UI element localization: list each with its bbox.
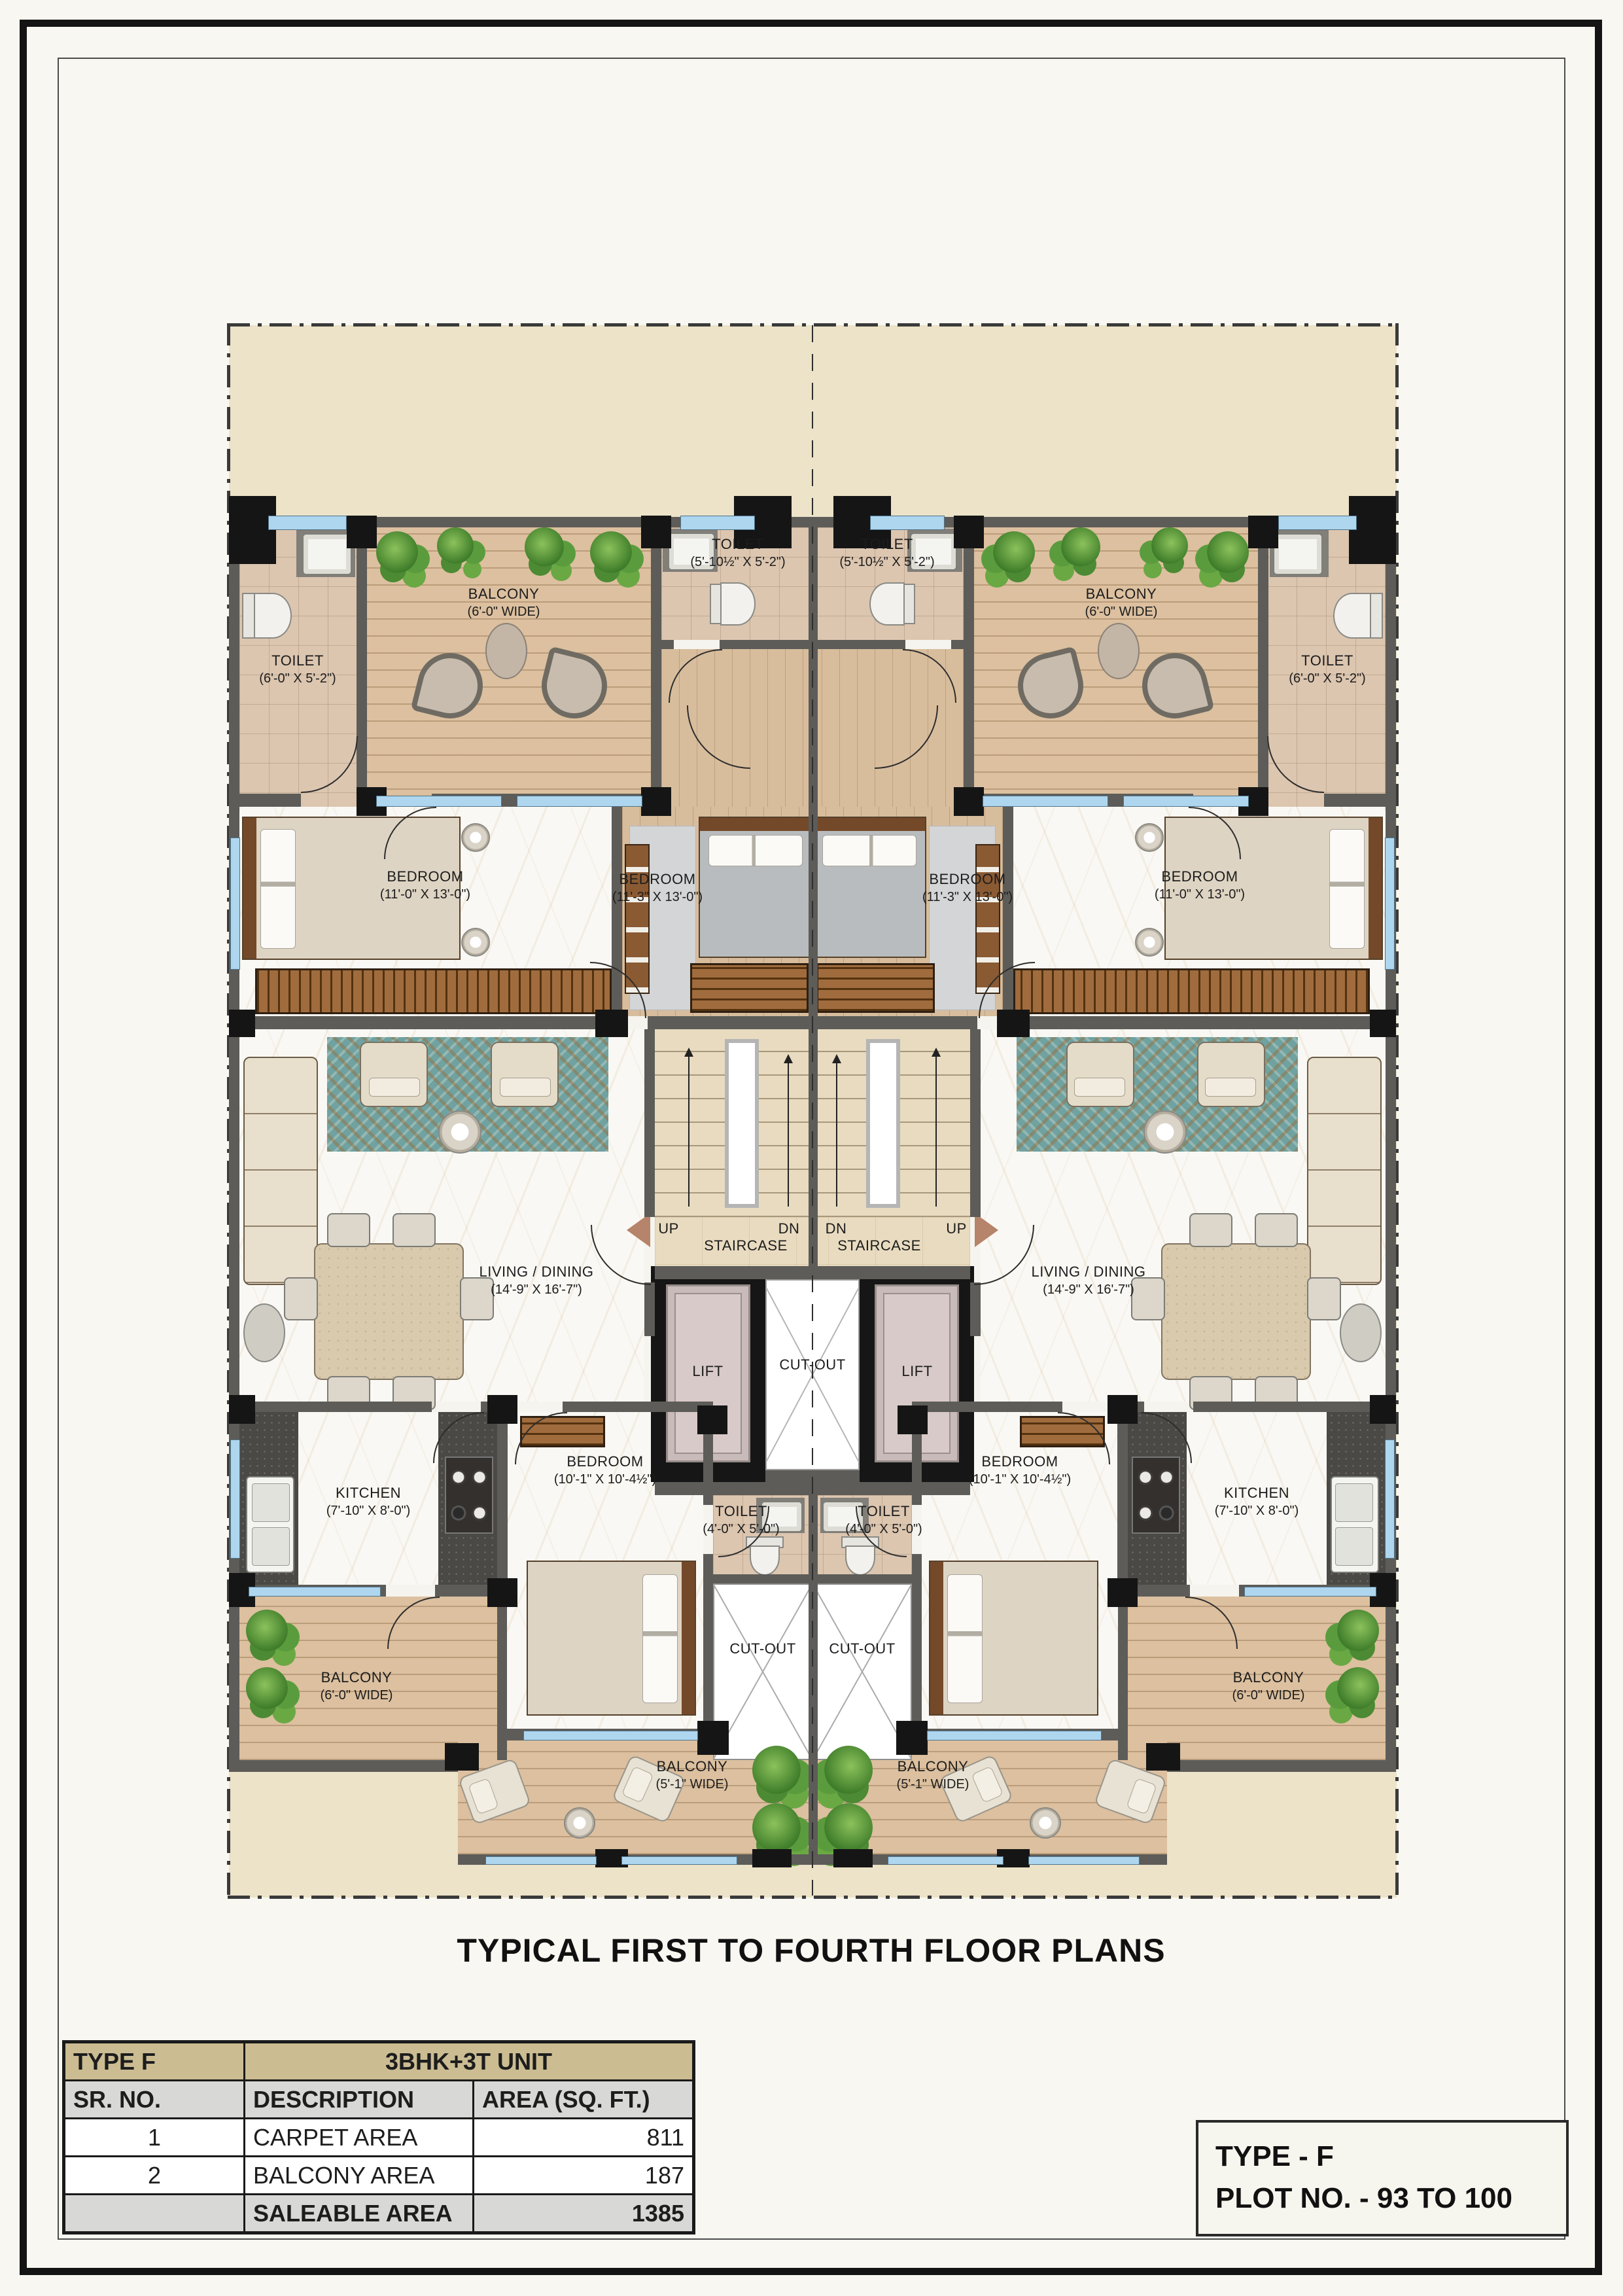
window (1385, 838, 1395, 970)
room-dims: (10'-1" X 10'-4½") (554, 1472, 656, 1488)
cutout-name: CUT-OUT (779, 1356, 845, 1375)
unit-label-cell: 3BHK+3T UNIT (243, 2043, 692, 2079)
room-name: KITCHEN (326, 1484, 411, 1503)
wall-shelf (975, 844, 1000, 994)
dining-chair (284, 1277, 318, 1320)
room-name: KITCHEN (1215, 1484, 1299, 1503)
armchair (491, 1042, 559, 1107)
room-name: BEDROOM (612, 870, 703, 889)
room-dims: (5'-10½" X 5'-2") (839, 554, 934, 571)
wall (703, 1554, 713, 1740)
wall (229, 1402, 432, 1412)
room-label-bedroom-outer: BEDROOM (11'-0" X 13'-0") (1155, 868, 1245, 903)
window (621, 1856, 737, 1865)
toilet-wc (869, 582, 905, 626)
room-dims: (14'-9" X 16'-7") (1032, 1282, 1146, 1298)
cell-sr: 2 (65, 2157, 243, 2193)
room-dims: (11'-3" X 13'-0") (922, 889, 1013, 906)
cutout-center-label: CUT-OUT (779, 1356, 845, 1375)
plant (824, 1803, 873, 1852)
wall (816, 640, 905, 649)
dining-chair (1255, 1213, 1298, 1247)
wall (648, 1016, 812, 1029)
col-sr-no: SR. NO. (65, 2081, 243, 2117)
floor-plan-sheet: { "title": "TYPICAL FIRST TO FOURTH FLOO… (0, 0, 1623, 2296)
col-area: AREA (SQ. FT.) (472, 2081, 692, 2117)
bed (699, 817, 811, 958)
column (697, 1721, 729, 1755)
plant (376, 531, 418, 573)
wardrobe (1013, 968, 1370, 1014)
room-name: BEDROOM (554, 1453, 656, 1472)
room-dims: (6'-0" WIDE) (321, 1687, 393, 1704)
stair-arrow-dn (788, 1056, 789, 1207)
room-label-balcony-side: BALCONY (6'-0" WIDE) (321, 1669, 393, 1704)
wardrobe (255, 968, 612, 1014)
column (896, 1721, 928, 1755)
window (680, 516, 755, 530)
room-name: LIVING / DINING (480, 1263, 594, 1282)
window (1385, 1439, 1395, 1559)
column (229, 1395, 255, 1424)
col-description: DESCRIPTION (243, 2081, 472, 2117)
wall (812, 1016, 977, 1029)
wall (1026, 1016, 1396, 1029)
type-label: TYPE - F (1215, 2136, 1566, 2178)
window (376, 796, 502, 807)
table-header-row: TYPE F 3BHK+3T UNIT (65, 2043, 692, 2079)
room-dims: (5'-1" WIDE) (897, 1776, 969, 1793)
wall (970, 1029, 981, 1217)
center-line (812, 325, 813, 1896)
room-name: BEDROOM (380, 868, 470, 887)
window (983, 796, 1108, 807)
wall (229, 1016, 599, 1029)
plant (246, 1667, 288, 1709)
room-dims: (4'-0" X 5'-0") (845, 1521, 922, 1538)
room-label-bedroom-small: BEDROOM (10'-1" X 10'-4½") (554, 1453, 656, 1488)
armchair (1197, 1042, 1265, 1107)
column (1370, 1010, 1396, 1037)
stair-void (866, 1039, 900, 1208)
plant (1207, 531, 1249, 573)
wall (497, 1412, 508, 1585)
room-dims: (5'-1" WIDE) (656, 1776, 729, 1793)
window (485, 1856, 597, 1865)
wardrobe (816, 963, 935, 1013)
column (1370, 1395, 1396, 1424)
stair-direction: UP (946, 1220, 967, 1239)
window (517, 796, 642, 807)
window (523, 1731, 698, 1740)
dining-chair (393, 1213, 436, 1247)
plot-number-label: PLOT NO. - 93 TO 100 (1215, 2178, 1566, 2219)
window (927, 1731, 1102, 1740)
stair-dn-label: DN (826, 1220, 847, 1239)
toilet-wc (720, 582, 756, 626)
column (954, 787, 984, 816)
room-dims: (11'-0" X 13'-0") (1155, 887, 1245, 903)
room-label-toilet-center: TOILET (5'-10½" X 5'-2") (690, 535, 785, 571)
wall (713, 1574, 812, 1583)
wall (229, 1760, 458, 1772)
balcony-table (485, 623, 527, 679)
room-dims: (6'-0" X 5'-2") (259, 671, 336, 687)
column (641, 787, 671, 816)
wardrobe (690, 963, 809, 1013)
coffee-table (438, 1110, 481, 1154)
drawing-title: TYPICAL FIRST TO FOURTH FLOOR PLANS (457, 1932, 1165, 1969)
wall (812, 1574, 912, 1583)
wall (1167, 1760, 1396, 1772)
deck-table (564, 1807, 595, 1839)
room-name: BALCONY (656, 1757, 729, 1776)
cooktop-hob (1132, 1457, 1180, 1534)
wall (563, 1402, 713, 1412)
stair-direction: UP (658, 1220, 679, 1239)
column (833, 1849, 873, 1867)
room-label-bedroom-center: BEDROOM (11'-3" X 13'-0") (612, 870, 703, 906)
cooktop-hob (445, 1457, 493, 1534)
sofa (243, 1057, 318, 1285)
room-label-balcony-side: BALCONY (6'-0" WIDE) (1232, 1669, 1305, 1704)
column (229, 1010, 255, 1037)
plant (246, 1610, 288, 1651)
window (870, 516, 945, 530)
sofa (1307, 1057, 1382, 1285)
cutout-name: CUT-OUT (729, 1640, 795, 1659)
column (229, 496, 276, 564)
column (697, 1405, 727, 1434)
room-label-kitchen: KITCHEN (7'-10" X 8'-0") (326, 1484, 411, 1519)
window (249, 1587, 381, 1597)
cutout-name: CUT-OUT (829, 1640, 895, 1659)
bedside-stool (1135, 823, 1164, 852)
window (1123, 796, 1249, 807)
room-label-living: LIVING / DINING (14'-9" X 16'-7") (1032, 1263, 1146, 1298)
room-name: BEDROOM (969, 1453, 1071, 1472)
wall (497, 1585, 507, 1760)
column (347, 516, 377, 548)
room-name: TOILET (845, 1502, 922, 1521)
wall (951, 640, 964, 649)
staircase-label: STAIRCASE (704, 1237, 788, 1256)
dining-chair (1189, 1213, 1232, 1247)
toilet-wc (1333, 593, 1371, 639)
room-name: BALCONY (1085, 585, 1158, 604)
table-columns-row: SR. NO. DESCRIPTION AREA (SQ. FT.) (65, 2079, 692, 2117)
party-wall (809, 517, 818, 1865)
room-name: BALCONY (897, 1757, 969, 1776)
stair-arrow-up (688, 1050, 689, 1207)
dining-table (1161, 1243, 1311, 1380)
armchair (1066, 1042, 1134, 1107)
wall (661, 640, 674, 649)
window (888, 1856, 1003, 1865)
plant (752, 1803, 801, 1852)
room-label-living: LIVING / DINING (14'-9" X 16'-7") (480, 1263, 594, 1298)
cell-sr: 1 (65, 2119, 243, 2155)
room-dims: (7'-10" X 8'-0") (326, 1503, 411, 1519)
window (230, 838, 240, 970)
armchair (360, 1042, 428, 1107)
column (1248, 516, 1278, 548)
dining-table (314, 1243, 464, 1380)
plant (1337, 1610, 1379, 1651)
window (1028, 1856, 1140, 1865)
window (230, 1439, 240, 1559)
type-plot-box: TYPE - F PLOT NO. - 93 TO 100 (1196, 2120, 1569, 2236)
area-table: TYPE F 3BHK+3T UNIT SR. NO. DESCRIPTION … (62, 2040, 695, 2234)
wall (651, 517, 661, 807)
bed (527, 1561, 696, 1716)
plant (752, 1746, 801, 1794)
room-label-bedroom-center: BEDROOM (11'-3" X 13'-0") (922, 870, 1013, 906)
room-dims: (5'-10½" X 5'-2") (690, 554, 785, 571)
stair-dn-label: DN (778, 1220, 800, 1239)
kitchen-sink (246, 1476, 294, 1573)
wall (655, 1482, 812, 1495)
room-label-kitchen: KITCHEN (7'-10" X 8'-0") (1215, 1484, 1299, 1519)
column (898, 1405, 928, 1434)
lift-name: LIFT (692, 1362, 723, 1381)
room-dims: (14'-9" X 16'-7") (480, 1282, 594, 1298)
room-label-toilet-center: TOILET (5'-10½" X 5'-2") (839, 535, 934, 571)
room-label-bedroom-outer: BEDROOM (11'-0" X 13'-0") (380, 868, 470, 903)
stair-up-label: UP (658, 1220, 679, 1239)
cell-description: BALCONY AREA (243, 2157, 472, 2193)
wall (229, 794, 301, 807)
stair-void (725, 1039, 759, 1208)
column (1108, 1395, 1138, 1424)
wall (812, 1482, 970, 1495)
plant (1061, 527, 1100, 567)
wall (1258, 517, 1268, 807)
room-name: TOILET (703, 1502, 779, 1521)
room-dims: (6'-0" WIDE) (1085, 604, 1158, 620)
wall (912, 1402, 1062, 1412)
wall-shelf (625, 844, 650, 994)
cell-description: CARPET AREA (243, 2119, 472, 2155)
wall (1193, 1402, 1396, 1412)
cell-description: SALEABLE AREA (243, 2195, 472, 2231)
wall (644, 1282, 655, 1336)
toilet-wc (254, 593, 292, 639)
room-name: BALCONY (321, 1669, 393, 1687)
staircase-label: STAIRCASE (837, 1237, 921, 1256)
cell-sr (65, 2195, 243, 2231)
stair-up-label: UP (946, 1220, 967, 1239)
staircase-name: STAIRCASE (837, 1237, 921, 1256)
plant (993, 531, 1035, 573)
wall (644, 1029, 655, 1217)
window (1278, 516, 1357, 530)
room-name: BALCONY (1232, 1669, 1305, 1687)
wash-basin (302, 533, 352, 575)
wall (970, 1282, 981, 1336)
window (1244, 1587, 1376, 1597)
room-name: TOILET (259, 652, 336, 671)
lift-label: LIFT (692, 1362, 723, 1381)
bed (929, 1561, 1098, 1716)
bedside-stool (461, 823, 490, 852)
stair-arrow-dn (836, 1056, 837, 1207)
column (445, 1743, 479, 1771)
table-total-row: SALEABLE AREA 1385 (65, 2193, 692, 2231)
wall (1117, 1412, 1128, 1585)
room-dims: (6'-0" WIDE) (1232, 1687, 1305, 1704)
room-name: LIVING / DINING (1032, 1263, 1146, 1282)
oval-mirror (1340, 1303, 1382, 1362)
column (487, 1395, 517, 1424)
wall (912, 1554, 922, 1740)
column (954, 516, 984, 548)
room-label-balcony-bottom: BALCONY (5'-1" WIDE) (656, 1757, 729, 1793)
wash-basin (1273, 533, 1323, 575)
plant (1337, 1667, 1379, 1709)
plant (824, 1746, 873, 1794)
column (1349, 496, 1396, 564)
cell-area: 1385 (472, 2195, 692, 2231)
lift-label: LIFT (901, 1362, 932, 1381)
cutout-label: CUT-OUT (729, 1640, 795, 1659)
room-name: TOILET (839, 535, 934, 554)
plant (437, 527, 474, 564)
room-label-balcony-top: BALCONY (6'-0" WIDE) (468, 585, 540, 620)
bedside-stool (1135, 928, 1164, 957)
room-label-balcony-bottom: BALCONY (5'-1" WIDE) (897, 1757, 969, 1793)
column (1146, 1743, 1180, 1771)
oval-mirror (243, 1303, 285, 1362)
dining-chair (1307, 1277, 1341, 1320)
room-dims: (7'-10" X 8'-0") (1215, 1503, 1299, 1519)
table-row: 1 CARPET AREA 811 (65, 2117, 692, 2155)
cutout-label: CUT-OUT (829, 1640, 895, 1659)
room-dims: (4'-0" X 5'-0") (703, 1521, 779, 1538)
plant (590, 531, 632, 573)
room-label-balcony-top: BALCONY (6'-0" WIDE) (1085, 585, 1158, 620)
room-label-bedroom-small: BEDROOM (10'-1" X 10'-4½") (969, 1453, 1071, 1488)
room-label-toilet-small: TOILET (4'-0" X 5'-0") (703, 1502, 779, 1538)
staircase-name: STAIRCASE (704, 1237, 788, 1256)
plant (525, 527, 564, 567)
cell-area: 187 (472, 2157, 692, 2193)
wall (1118, 1585, 1128, 1760)
room-name: BEDROOM (922, 870, 1013, 889)
type-label-cell: TYPE F (65, 2043, 243, 2079)
bedside-stool (461, 928, 490, 957)
column (487, 1578, 517, 1607)
stair-direction: DN (826, 1220, 847, 1239)
stair-arrow-up (935, 1050, 937, 1207)
lift-name: LIFT (901, 1362, 932, 1381)
column (752, 1849, 792, 1867)
table-row: 2 BALCONY AREA 187 (65, 2155, 692, 2193)
room-label-toilet-corner: TOILET (6'-0" X 5'-2") (259, 652, 336, 687)
room-name: BALCONY (468, 585, 540, 604)
wall (720, 640, 809, 649)
room-name: TOILET (1289, 652, 1365, 671)
wall (357, 517, 367, 807)
room-name: BEDROOM (1155, 868, 1245, 887)
room-dims: (6'-0" X 5'-2") (1289, 671, 1365, 687)
bed (814, 817, 926, 958)
dining-chair (327, 1213, 370, 1247)
wall (964, 517, 974, 807)
window (268, 516, 347, 530)
plant (1151, 527, 1188, 564)
deck-table (1030, 1807, 1061, 1839)
room-dims: (10'-1" X 10'-4½") (969, 1472, 1071, 1488)
coffee-table (1143, 1110, 1187, 1154)
room-dims: (11'-0" X 13'-0") (380, 887, 470, 903)
room-dims: (11'-3" X 13'-0") (612, 889, 703, 906)
balcony-table (1098, 623, 1140, 679)
room-dims: (6'-0" WIDE) (468, 604, 540, 620)
column (1108, 1578, 1138, 1607)
stair-direction: DN (778, 1220, 800, 1239)
kitchen-sink (1331, 1476, 1379, 1573)
cell-area: 811 (472, 2119, 692, 2155)
room-label-toilet-corner: TOILET (6'-0" X 5'-2") (1289, 652, 1365, 687)
room-label-toilet-small: TOILET (4'-0" X 5'-0") (845, 1502, 922, 1538)
room-name: TOILET (690, 535, 785, 554)
column (641, 516, 671, 548)
